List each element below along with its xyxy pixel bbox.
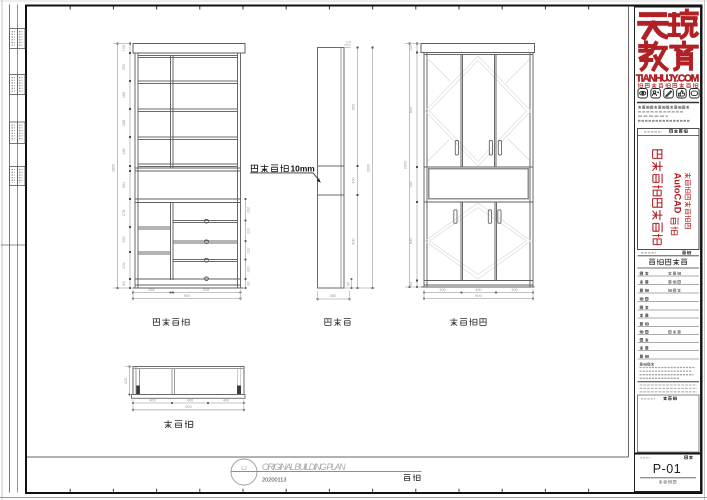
svg-text:ORIGINAL BUILDING PLAN: ORIGINAL BUILDING PLAN: [262, 462, 346, 472]
svg-text:400: 400: [511, 288, 517, 292]
svg-text:234: 234: [122, 262, 126, 268]
svg-text:AutoCAD: AutoCAD: [673, 173, 683, 214]
svg-text:320: 320: [124, 378, 128, 384]
svg-text:364: 364: [148, 288, 154, 292]
svg-text:564: 564: [122, 182, 126, 188]
svg-text:400: 400: [352, 177, 356, 183]
svg-text:900: 900: [475, 293, 482, 298]
svg-text:20200113: 20200113: [262, 478, 286, 484]
svg-text:288: 288: [122, 120, 126, 126]
svg-text:83: 83: [122, 281, 126, 285]
svg-text:83: 83: [247, 282, 251, 286]
svg-text:278: 278: [122, 210, 126, 216]
svg-text:400: 400: [149, 399, 155, 403]
svg-text:850: 850: [352, 104, 356, 110]
svg-text:2800: 2800: [112, 164, 116, 172]
svg-text:2800: 2800: [404, 161, 408, 169]
svg-text:LJ: LJ: [241, 466, 247, 472]
svg-text:518: 518: [203, 288, 209, 292]
svg-text:350: 350: [122, 64, 126, 70]
svg-text:900: 900: [184, 293, 191, 298]
svg-text:400: 400: [475, 288, 481, 292]
svg-text:2800: 2800: [367, 164, 371, 172]
svg-text:800: 800: [352, 238, 356, 244]
svg-text:288: 288: [122, 148, 126, 154]
svg-text:P-01: P-01: [653, 462, 681, 476]
svg-text:83: 83: [347, 282, 351, 286]
svg-text:100: 100: [346, 41, 352, 45]
svg-text:100: 100: [122, 45, 126, 51]
svg-text:400: 400: [439, 288, 445, 292]
svg-text:400: 400: [223, 399, 229, 403]
svg-text:900: 900: [185, 404, 192, 409]
svg-text:460: 460: [330, 293, 337, 298]
svg-text:212: 212: [247, 228, 251, 234]
svg-text:250: 250: [122, 236, 126, 242]
svg-text:288: 288: [122, 92, 126, 98]
svg-text:10mm: 10mm: [291, 164, 315, 174]
svg-text:TIANHUJY.COM: TIANHUJY.COM: [636, 74, 700, 85]
svg-text:400: 400: [187, 399, 193, 403]
svg-text:220: 220: [247, 267, 251, 273]
svg-text:212: 212: [247, 248, 251, 254]
svg-text:202: 202: [247, 207, 251, 213]
